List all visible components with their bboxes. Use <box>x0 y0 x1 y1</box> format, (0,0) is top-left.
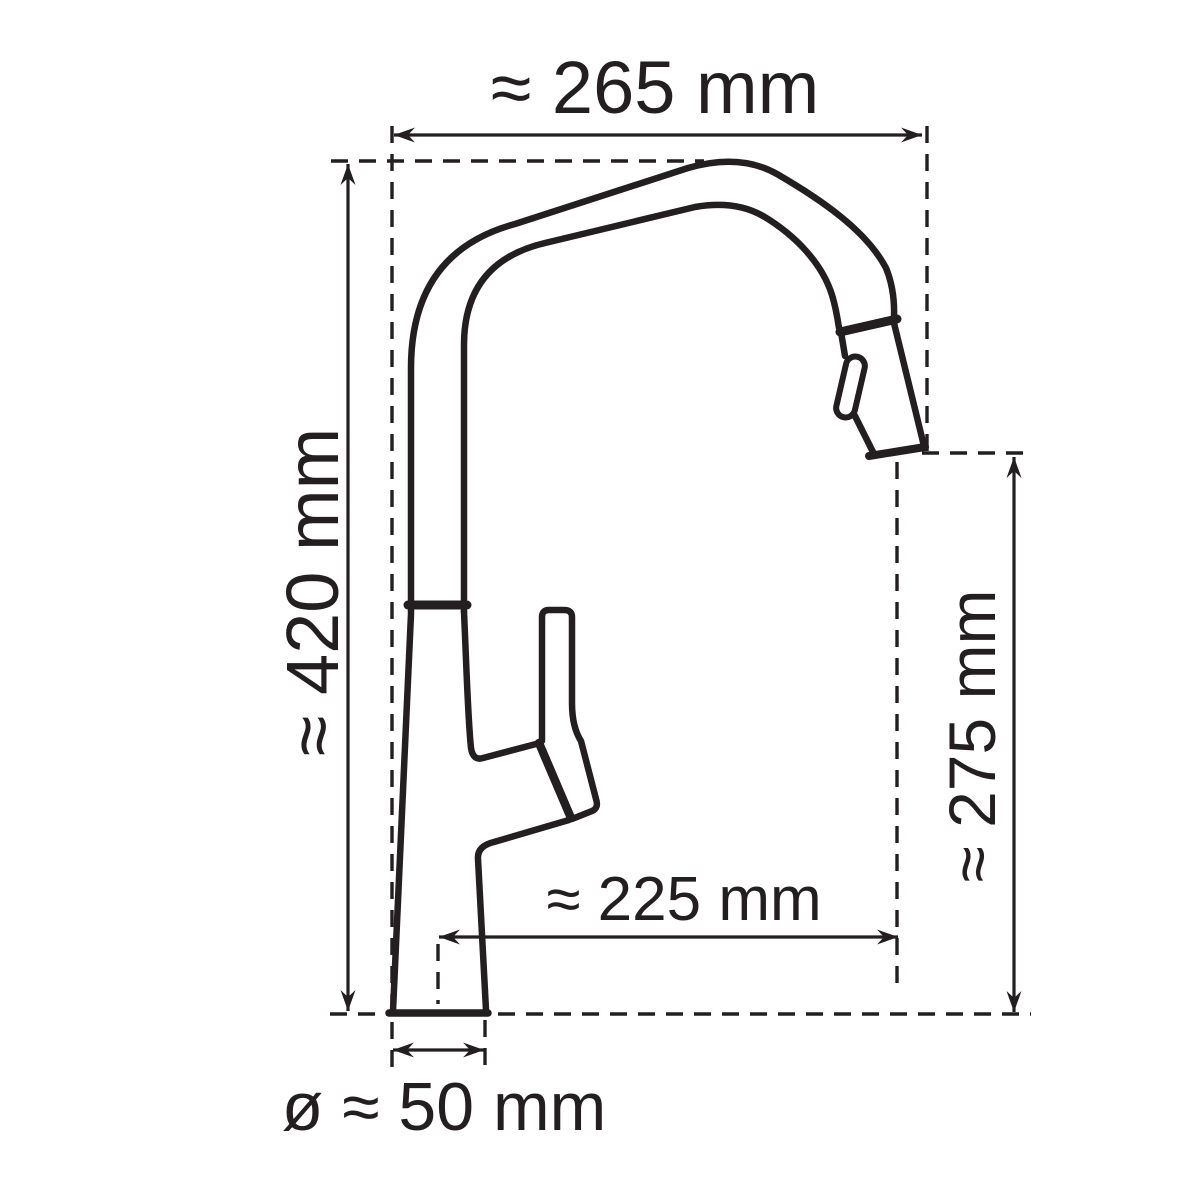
handle-lever <box>542 610 597 819</box>
faucet-inner-edge <box>464 205 839 612</box>
spray-head-joint <box>840 319 897 332</box>
spray-head-nozzle-edge <box>869 447 925 456</box>
label-spout-width: ≈ 265 mm <box>491 46 819 129</box>
spray-toggle-button <box>834 355 866 420</box>
spray-head-left-edge-upper <box>841 332 845 356</box>
label-total-height: ≈ 420 mm <box>271 428 354 756</box>
spray-head-left-edge-lower <box>855 416 873 452</box>
handle-seam <box>539 743 571 818</box>
diagram-canvas: ≈ 265 mm ≈ 420 mm ≈ 275 mm ≈ 225 mm ø ≈ … <box>0 0 1200 1200</box>
spray-head-right-edge <box>893 319 924 446</box>
faucet-dimension-diagram: ≈ 265 mm ≈ 420 mm ≈ 275 mm ≈ 225 mm ø ≈ … <box>0 0 1200 1200</box>
label-spout-reach: ≈ 225 mm <box>546 865 821 934</box>
label-outlet-height: ≈ 275 mm <box>935 590 1009 883</box>
label-base-diameter: ø ≈ 50 mm <box>282 1069 606 1145</box>
body-right-edge <box>464 612 536 759</box>
